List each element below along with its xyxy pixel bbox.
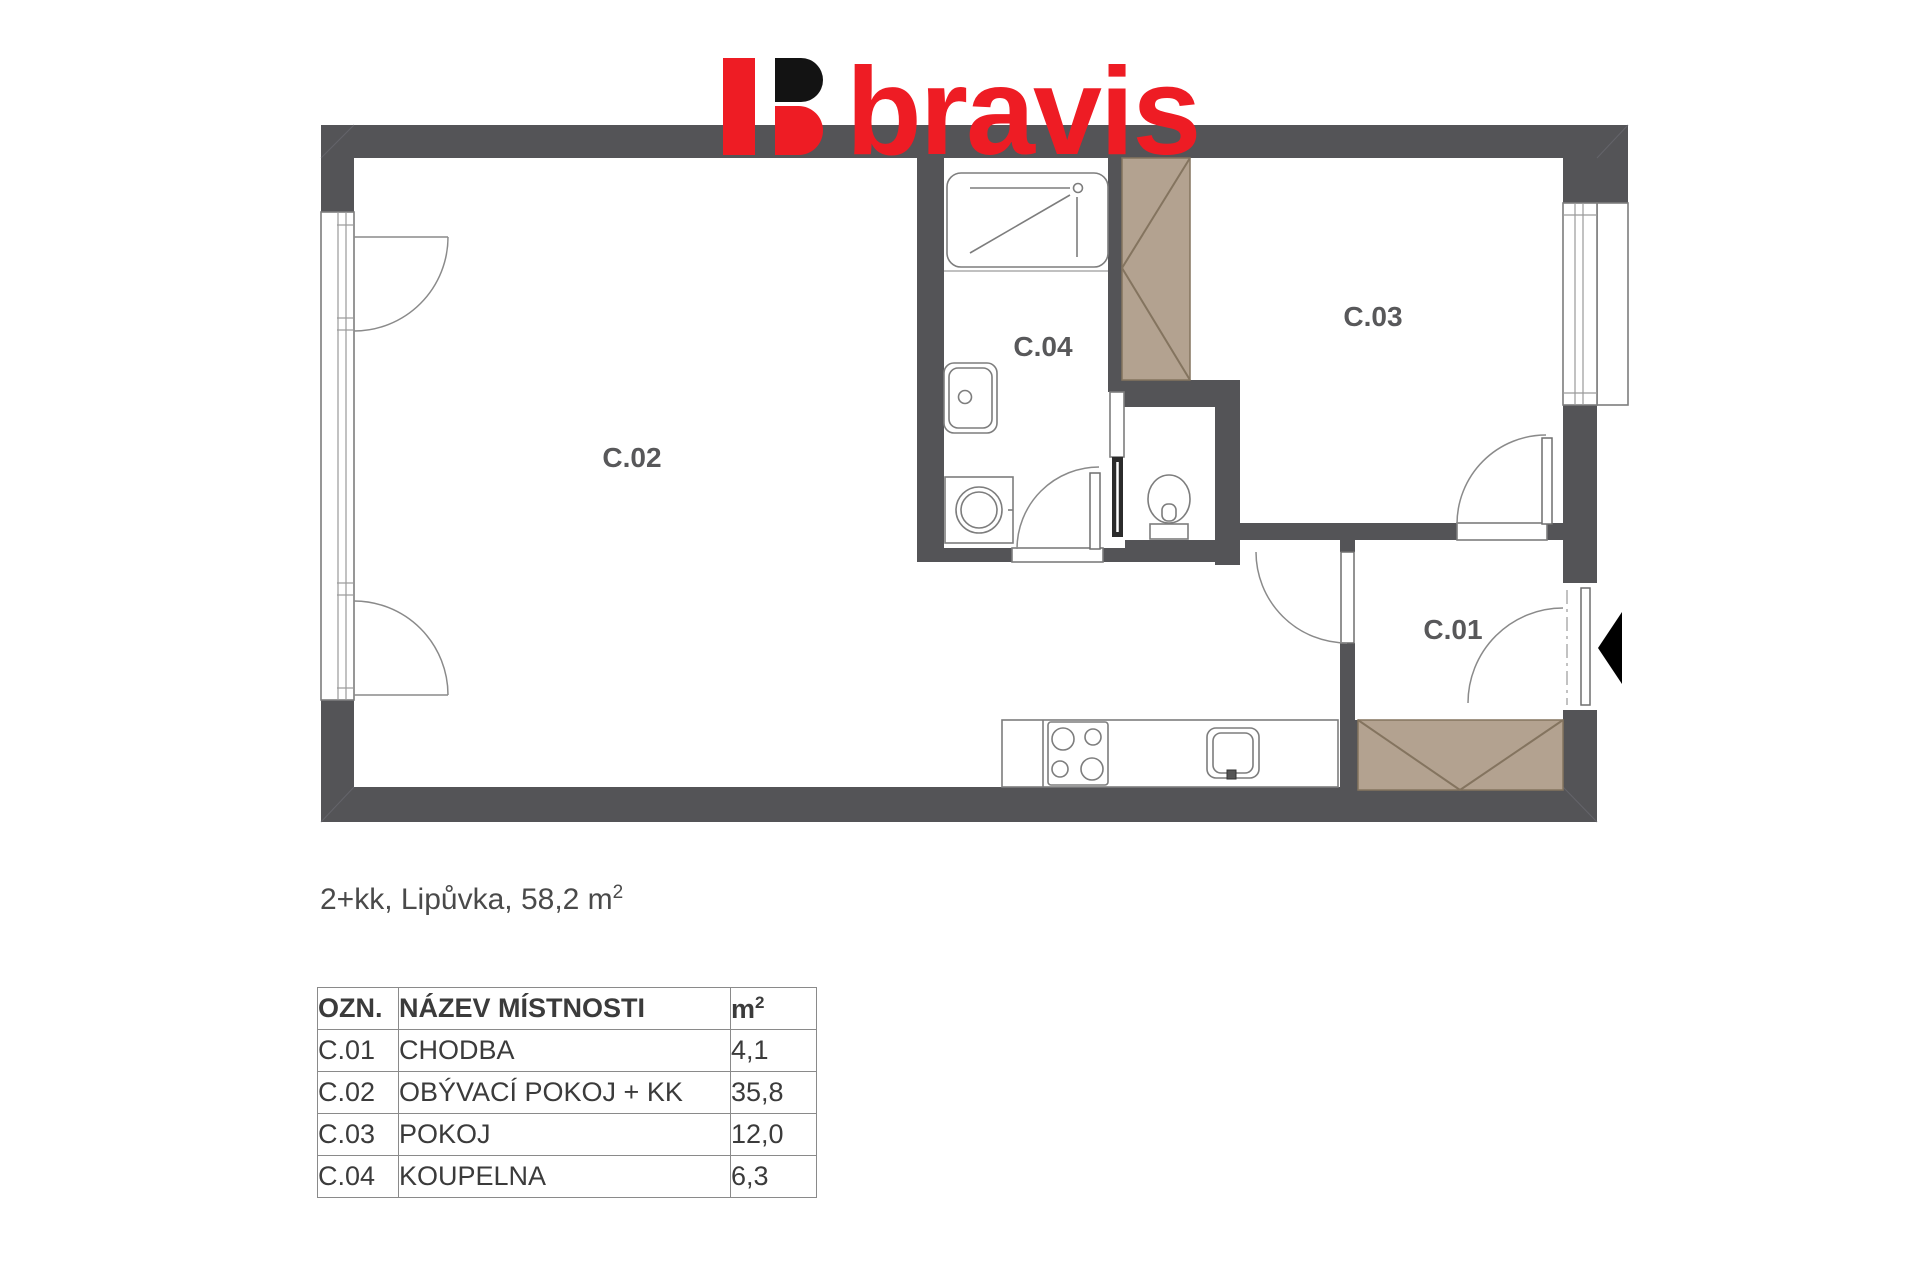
cell-ozn: C.03 (318, 1114, 399, 1156)
wall-bathroom-left (917, 158, 944, 548)
plan-caption-sup: 2 (613, 882, 624, 903)
table-row: C.02 OBÝVACÍ POKOJ + KK 35,8 (318, 1072, 817, 1114)
cell-nazev: CHODBA (399, 1030, 731, 1072)
logo-b-bottom-icon (775, 106, 823, 155)
cell-nazev: KOUPELNA (399, 1156, 731, 1198)
logo-bar-icon (723, 58, 755, 155)
cell-area: 4,1 (731, 1030, 817, 1072)
entrance-door (1468, 583, 1622, 710)
wc-fixtures (1110, 392, 1190, 539)
logo-b-top-icon (775, 58, 823, 102)
wc-sliding-door (1110, 392, 1124, 537)
kitchen-sink (1207, 728, 1259, 779)
cell-ozn: C.04 (318, 1156, 399, 1198)
cell-ozn: C.01 (318, 1030, 399, 1072)
cell-area: 12,0 (731, 1114, 817, 1156)
window-c03 (1563, 203, 1628, 405)
bathroom-door-leaf (1090, 473, 1100, 549)
wall-wc-right (1215, 380, 1240, 565)
header-ozn: OZN. (318, 988, 399, 1030)
bathroom-door (1012, 467, 1103, 562)
logo-wordmark: bravis (846, 50, 1199, 174)
wall-left-lower (321, 700, 354, 822)
wall-left-upper (321, 125, 354, 212)
table-header-row: OZN. NÁZEV MÍSTNOSTI m2 (318, 988, 817, 1030)
kitchen-tap (1227, 770, 1236, 779)
room-area-table: OZN. NÁZEV MÍSTNOSTI m2 C.01 CHODBA 4,1 … (317, 987, 817, 1198)
cooktop (1048, 722, 1108, 785)
kitchen-counter (1002, 720, 1338, 787)
c01-door-leaf (1341, 552, 1354, 643)
cell-nazev: OBÝVACÍ POKOJ + KK (399, 1072, 731, 1114)
room-label-c03: C.03 (1343, 301, 1402, 332)
entrance-door-leaf (1581, 588, 1590, 705)
washing-machine (945, 477, 1013, 543)
plan-caption: 2+kk, Lipůvka, 58,2 m2 (320, 882, 623, 917)
wall-right-below-window (1563, 405, 1597, 583)
wall-bottom (321, 787, 1597, 822)
logo-wordmark-text: bravis (846, 43, 1199, 181)
cell-area: 6,3 (731, 1156, 817, 1198)
wall-c01-left-mid (1340, 643, 1355, 720)
installation-shaft (1122, 158, 1190, 380)
floorplan-page: { "colors": { "wall": "#545457", "tan": … (0, 0, 1920, 1270)
wall-right-above-window (1563, 158, 1597, 203)
wall-right-top-outer (1597, 125, 1628, 203)
room-label-c02: C.02 (602, 442, 661, 473)
entrance-arrow-icon (1598, 612, 1622, 684)
wall-c03-bottom (1240, 523, 1457, 540)
window-left (321, 212, 448, 700)
cell-ozn: C.02 (318, 1072, 399, 1114)
cell-nazev: POKOJ (399, 1114, 731, 1156)
wall-c01-left-lower (1340, 720, 1358, 790)
table-row: C.03 POKOJ 12,0 (318, 1114, 817, 1156)
bathtub (947, 173, 1108, 267)
window-door-upper (354, 237, 448, 331)
wall-bathroom-bottom-left (917, 548, 1012, 562)
header-nazev: NÁZEV MÍSTNOSTI (399, 988, 731, 1030)
window-door-lower (354, 601, 448, 695)
c03-door (1457, 435, 1552, 540)
room-label-c04: C.04 (1013, 331, 1073, 362)
washbasin (944, 363, 997, 433)
wall-c01-left-stub (1340, 540, 1355, 552)
table-row: C.04 KOUPELNA 6,3 (318, 1156, 817, 1198)
toilet (1148, 475, 1190, 539)
cell-area: 35,8 (731, 1072, 817, 1114)
c01-door (1256, 552, 1354, 643)
room-label-c01: C.01 (1423, 614, 1482, 645)
plan-caption-text: 2+kk, Lipůvka, 58,2 m (320, 883, 613, 916)
wall-c03-bottom-stub (1547, 523, 1563, 540)
table-row: C.01 CHODBA 4,1 (318, 1030, 817, 1072)
hallway-wardrobe (1358, 720, 1563, 790)
header-m2: m2 (731, 988, 817, 1030)
c03-door-leaf (1542, 438, 1552, 524)
floor-plan: C.02 C.04 C.03 C.01 (0, 0, 1920, 1270)
